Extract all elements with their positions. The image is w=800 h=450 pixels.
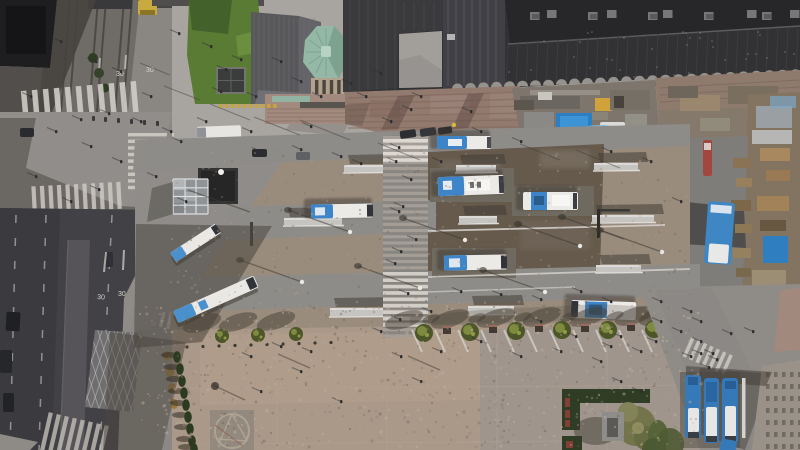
svg-text:30: 30 — [97, 294, 105, 302]
svg-text:30: 30 — [118, 291, 126, 298]
svg-text:30: 30 — [116, 71, 124, 78]
